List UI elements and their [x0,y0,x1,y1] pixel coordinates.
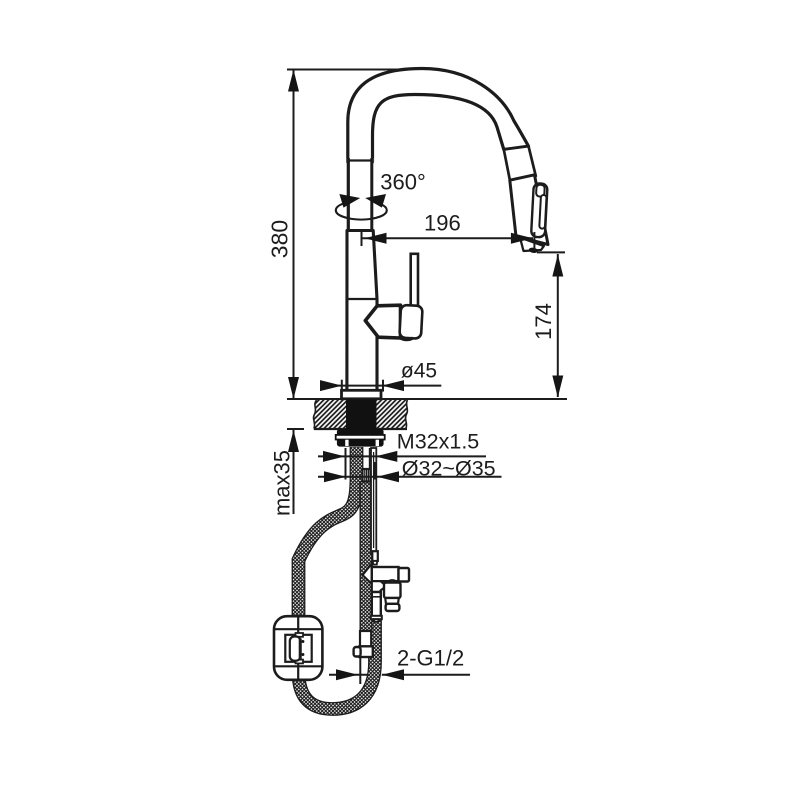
svg-text:ø45: ø45 [401,360,437,383]
svg-text:174: 174 [531,303,556,340]
svg-text:360°: 360° [380,170,426,195]
svg-text:196: 196 [424,211,461,236]
svg-text:Ø32~Ø35: Ø32~Ø35 [402,456,496,480]
svg-text:2-G1/2: 2-G1/2 [397,646,464,671]
svg-text:M32x1.5: M32x1.5 [397,429,480,453]
svg-text:380: 380 [267,220,293,258]
svg-text:max35: max35 [270,450,295,516]
